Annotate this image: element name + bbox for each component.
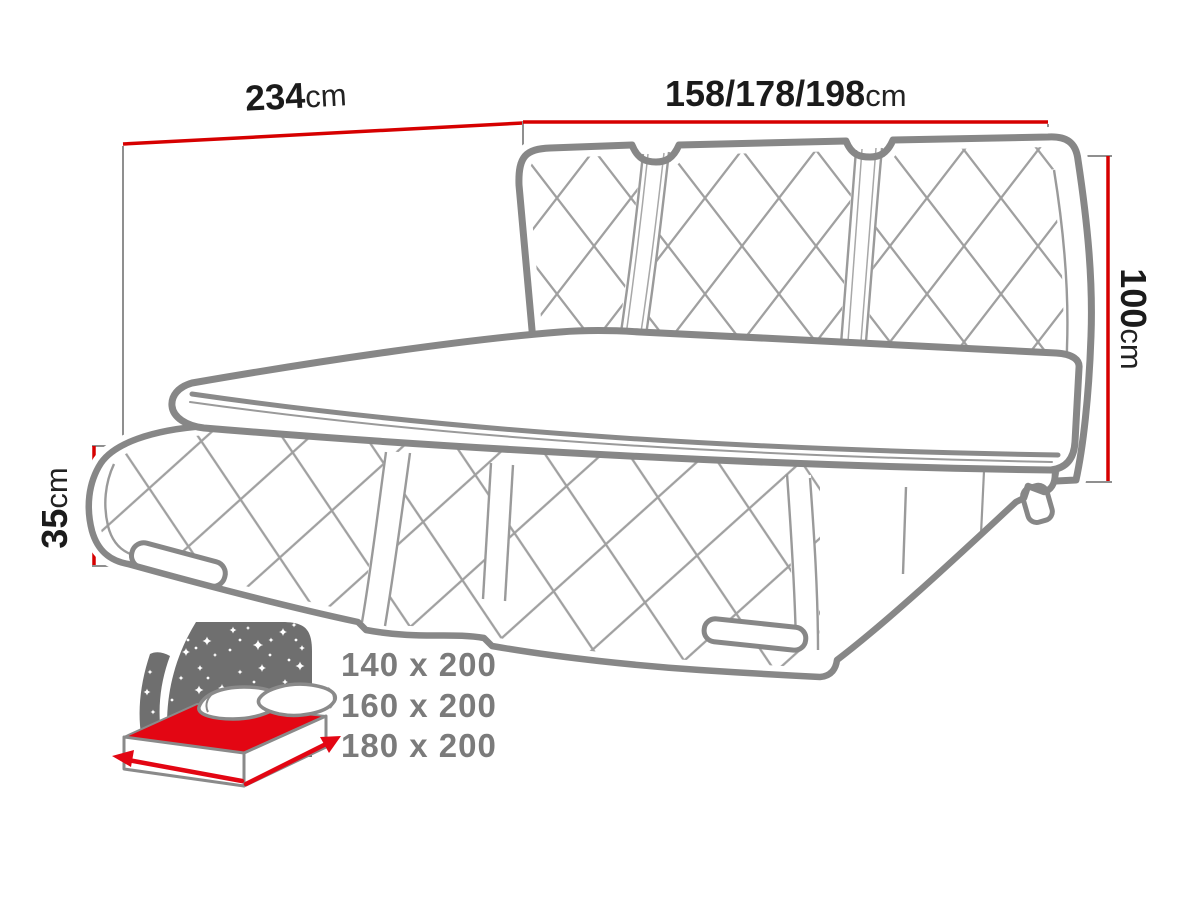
bed-width-label: 234cm [244, 75, 347, 117]
bed-technical-drawing [0, 0, 1200, 900]
bed-width-value: 234 [244, 75, 306, 119]
mattress-size-night-icon [112, 622, 341, 786]
frame-height-label: 35cm [37, 467, 73, 548]
mattress-size-option-3: 180 x 200 [341, 729, 497, 762]
bed-width-unit: cm [304, 77, 347, 114]
headboard-width-unit: cm [865, 78, 906, 113]
headboard-width-value: 158/178/198 [665, 73, 865, 114]
frame-height-unit: cm [39, 467, 74, 508]
icon-pillows [199, 684, 336, 719]
bed-dimension-diagram: 234cm 158/178/198cm 100cm 35cm 140 x 200… [0, 0, 1200, 900]
headboard-width-label: 158/178/198cm [665, 76, 907, 112]
headboard-height-value: 100 [1113, 268, 1154, 328]
headboard-height-label: 100cm [1115, 268, 1151, 369]
mattress-size-option-2: 160 x 200 [341, 689, 497, 722]
mattress-size-option-1: 140 x 200 [341, 648, 497, 681]
frame-height-value: 35 [34, 509, 75, 549]
headboard-height-unit: cm [1114, 328, 1149, 369]
